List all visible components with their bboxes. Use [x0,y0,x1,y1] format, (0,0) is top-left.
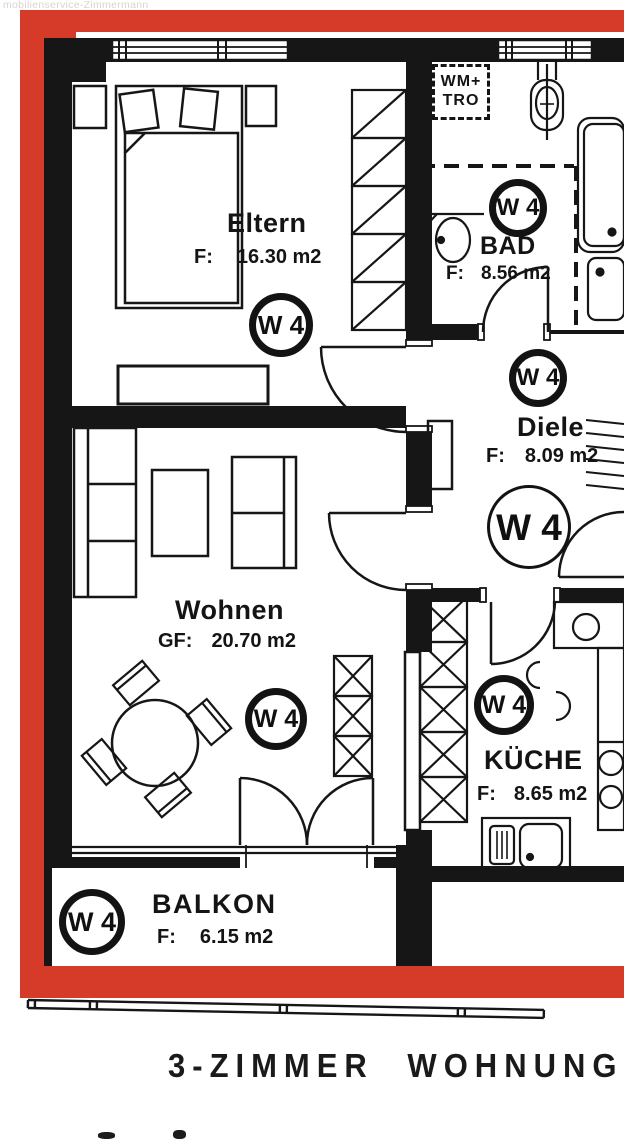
unit-badge-diele-lower: W 4 [487,485,571,569]
kueche-door [480,588,560,664]
area-value: 20.70 m2 [211,631,296,651]
double-bed [116,86,242,308]
room-area-kueche: F: 8.65 m2 [477,784,587,804]
bed-bench [118,366,268,404]
area-value: 8.65 m2 [514,784,587,804]
wardrobe [352,90,406,330]
counter-top [554,602,624,648]
kitchen-sink [482,818,570,870]
unit-badge-eltern: W 4 [249,293,313,357]
coffee-table [152,470,208,556]
sofa-small [232,457,296,568]
area-value: 16.30 m2 [237,247,322,267]
room-name-kueche: KÜCHE [484,747,583,774]
nightstand-right [246,86,276,126]
area-value: 8.56 m2 [481,264,551,283]
area-value: 6.15 m2 [200,927,273,947]
counter-right-stove [598,648,624,830]
unit-badge-balkon: W 4 [59,889,125,955]
room-area-eltern: F: 16.30 m2 [194,247,321,267]
plan-title: 3-ZIMMER WOHNUNG [168,1049,623,1082]
scan-watermark: mobilienservice-Zimmermann [3,0,149,11]
room-area-bad: F: 8.56 m2 [446,264,551,283]
laundry-box: WM+ TRO [432,64,490,120]
room-area-balkon: F: 6.15 m2 [157,927,273,947]
room-name-wohnen: Wohnen [175,597,284,624]
room-area-wohnen: GF: 20.70 m2 [158,631,296,651]
unit-badge-bad: W 4 [489,179,547,237]
room-name-diele: Diele [517,414,584,441]
room-name-balkon: BALKON [152,891,277,918]
scan-smudge [173,1130,186,1139]
duct-shaft-wohnen-side [334,656,372,776]
area-label: F: [477,784,496,804]
bathtub [578,118,624,252]
area-label: GF: [158,631,192,651]
toilet [531,62,563,140]
room-name-eltern: Eltern [227,210,307,237]
bad-window [498,40,592,60]
shower-tray [588,258,624,320]
laundry-line1: WM+ [441,73,482,92]
unit-badge-diele-upper: W 4 [509,349,567,407]
dining-table [112,700,198,786]
balcony-window-band [52,847,406,853]
balcony-door [240,778,373,868]
area-label: F: [446,264,464,283]
area-value: 8.09 m2 [525,446,598,466]
area-label: F: [157,927,176,947]
dining-chairs [82,661,231,817]
floorplan-page: mobilienservice-Zimmermann Eltern F: 16.… [0,0,624,1140]
cabinet-swings [527,662,570,720]
room-name-bad: BAD [480,234,536,259]
scan-smudge [98,1132,115,1139]
eltern-window [112,40,288,60]
area-label: F: [486,446,505,466]
kueche-fixtures [334,597,624,870]
sofa-large [74,428,136,597]
eltern-furniture [74,86,406,404]
nightstand-left [74,86,106,128]
room-area-diele: F: 8.09 m2 [486,446,598,466]
unit-badge-kueche: W 4 [474,675,534,735]
laundry-line2: TRO [443,92,480,111]
area-label: F: [194,247,213,267]
balcony-railing [28,1000,544,1018]
floorplan-drawing [0,0,624,1140]
unit-badge-wohnen: W 4 [245,688,307,750]
wohnen-door [329,506,432,590]
